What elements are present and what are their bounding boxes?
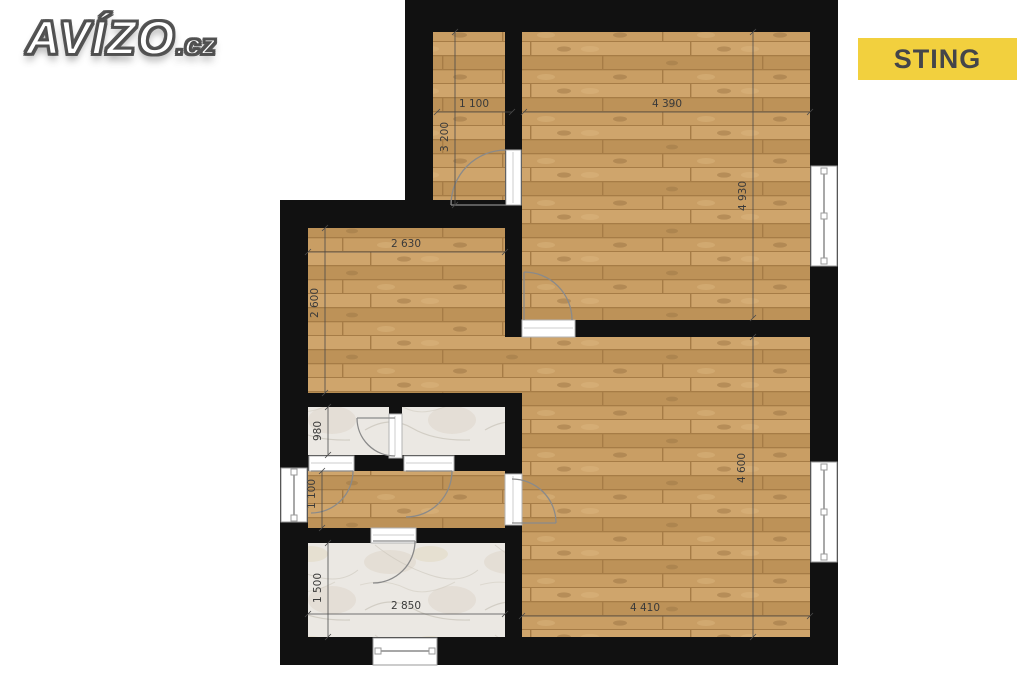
floor-bathroom	[308, 543, 505, 637]
svg-text:4 930: 4 930	[737, 181, 749, 211]
svg-text:980: 980	[312, 421, 324, 441]
svg-text:2 630: 2 630	[391, 238, 421, 250]
avizo-logo-tld: .cz	[176, 29, 216, 60]
floor-hallway	[308, 471, 505, 528]
floor-plan: 1 100 4 390 3 200 4 930 2 630	[0, 0, 1024, 675]
floor-bath-small	[402, 407, 505, 455]
svg-text:4 390: 4 390	[652, 98, 682, 110]
wall-top	[405, 0, 838, 32]
svg-text:1 500: 1 500	[312, 573, 324, 603]
wall-left	[280, 200, 308, 665]
svg-text:2 600: 2 600	[309, 288, 321, 318]
window-right-lower	[811, 462, 837, 562]
wall-above-bath	[300, 393, 520, 407]
sting-badge-label: STING	[894, 44, 982, 75]
window-right-upper	[811, 166, 837, 266]
wall-bottom	[280, 637, 838, 665]
passage-opening	[505, 337, 522, 393]
wall-right	[810, 0, 838, 665]
svg-text:2 850: 2 850	[391, 600, 421, 612]
wall-upper-left	[405, 0, 433, 228]
window-left	[281, 468, 307, 522]
avizo-logo: AVÍZO.cz	[26, 10, 217, 65]
svg-text:4 600: 4 600	[736, 453, 748, 483]
svg-text:1 100: 1 100	[306, 479, 318, 509]
window-bottom	[373, 638, 437, 665]
sting-badge: STING	[858, 38, 1017, 80]
wall-step	[280, 200, 522, 228]
avizo-logo-text: AVÍZO	[26, 11, 176, 64]
svg-text:3 200: 3 200	[439, 122, 451, 152]
floor-room-top-right	[522, 32, 810, 320]
svg-text:4 410: 4 410	[630, 602, 660, 614]
listing-photo: 1 100 4 390 3 200 4 930 2 630	[0, 0, 1024, 675]
floor-room-mid-left	[308, 228, 505, 393]
svg-text:1 100: 1 100	[459, 98, 489, 110]
floor-room-top-left	[433, 32, 505, 200]
floor-room-bottom-right	[522, 337, 810, 637]
